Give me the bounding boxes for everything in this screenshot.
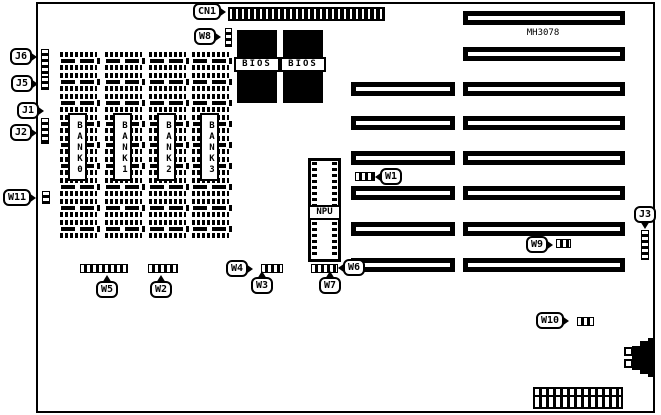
isa-slot-short xyxy=(351,222,455,236)
motherboard-diagram: MH3078 BANK0 BANK1 BANK2 BANK3 BIOS BIOS… xyxy=(0,0,661,415)
j6-connector xyxy=(41,49,49,77)
w8-callout: W8 xyxy=(194,28,216,45)
keyboard-connector-pin xyxy=(624,347,633,356)
keyboard-connector xyxy=(648,338,655,377)
j1-callout: J1 xyxy=(17,102,39,119)
isa-slot-short xyxy=(351,116,455,130)
dram-chip xyxy=(58,220,97,238)
dram-chip xyxy=(103,52,142,70)
j2-callout: J2 xyxy=(10,124,32,141)
dram-chip xyxy=(58,199,97,217)
npu-socket-label: NPU xyxy=(308,205,341,220)
keyboard-connector-pin xyxy=(624,359,633,368)
w7-callout: W7 xyxy=(319,277,341,294)
w6-callout: W6 xyxy=(343,259,365,276)
dram-chip xyxy=(147,199,186,217)
isa-slot-long xyxy=(463,258,625,272)
dram-chip xyxy=(190,52,229,70)
dram-chip xyxy=(103,220,142,238)
isa-slot-long xyxy=(463,151,625,165)
w1-callout: W1 xyxy=(380,168,402,185)
w8-jumper xyxy=(225,28,232,47)
j3-jumper xyxy=(641,230,649,260)
dram-chip xyxy=(58,73,97,91)
npu-socket: NPU xyxy=(308,158,341,262)
bank3-label: BANK3 xyxy=(200,113,219,181)
j1-j2-connector xyxy=(41,118,49,144)
w11-jumper xyxy=(42,191,50,204)
dram-chip xyxy=(190,94,229,112)
dram-chip xyxy=(103,73,142,91)
power-connector-teeth xyxy=(533,397,623,409)
bios-chip-1-label: BIOS xyxy=(234,57,280,72)
dram-chip xyxy=(103,199,142,217)
isa-slot-long xyxy=(463,82,625,96)
dram-chip xyxy=(190,199,229,217)
keyboard-connector xyxy=(632,346,641,370)
model-silkscreen: MH3078 xyxy=(500,28,586,38)
j3-callout: J3 xyxy=(634,206,656,223)
bios-chip-1: BIOS xyxy=(237,30,277,103)
w11-callout: W11 xyxy=(3,189,31,206)
w10-jumper xyxy=(577,317,594,326)
power-connector-pins xyxy=(533,387,623,397)
isa-slot-long xyxy=(463,11,625,25)
bank0-label: BANK0 xyxy=(68,113,87,181)
isa-slot-long xyxy=(463,116,625,130)
dram-chip xyxy=(58,52,97,70)
dram-chip xyxy=(147,94,186,112)
bank2-label: BANK2 xyxy=(157,113,176,181)
w5-callout: W5 xyxy=(96,281,118,298)
cn1-callout: CN1 xyxy=(193,3,221,20)
dram-chip xyxy=(147,73,186,91)
w9-jumper xyxy=(556,239,571,248)
bios-chip-2: BIOS xyxy=(283,30,323,103)
cn1-connector xyxy=(228,7,385,21)
bios-chip-2-label: BIOS xyxy=(280,57,326,72)
isa-slot-short xyxy=(351,186,455,200)
w3-callout: W3 xyxy=(251,277,273,294)
bank1-label: BANK1 xyxy=(113,113,132,181)
w4-callout: W4 xyxy=(226,260,248,277)
isa-slot-long xyxy=(463,47,625,61)
dram-chip xyxy=(103,94,142,112)
dram-chip xyxy=(190,73,229,91)
w9-callout: W9 xyxy=(526,236,548,253)
j5-callout: J5 xyxy=(11,75,33,92)
w10-callout: W10 xyxy=(536,312,564,329)
keyboard-connector xyxy=(640,341,649,374)
isa-slot-short xyxy=(351,151,455,165)
isa-slot-long xyxy=(463,186,625,200)
j6-callout: J6 xyxy=(10,48,32,65)
isa-slot-long xyxy=(463,222,625,236)
dram-chip xyxy=(190,220,229,238)
dram-chip xyxy=(58,94,97,112)
w2-callout: W2 xyxy=(150,281,172,298)
dram-chip xyxy=(147,52,186,70)
isa-slot-short xyxy=(351,258,455,272)
dram-chip xyxy=(147,220,186,238)
power-connector xyxy=(533,387,623,409)
isa-slot-short xyxy=(351,82,455,96)
